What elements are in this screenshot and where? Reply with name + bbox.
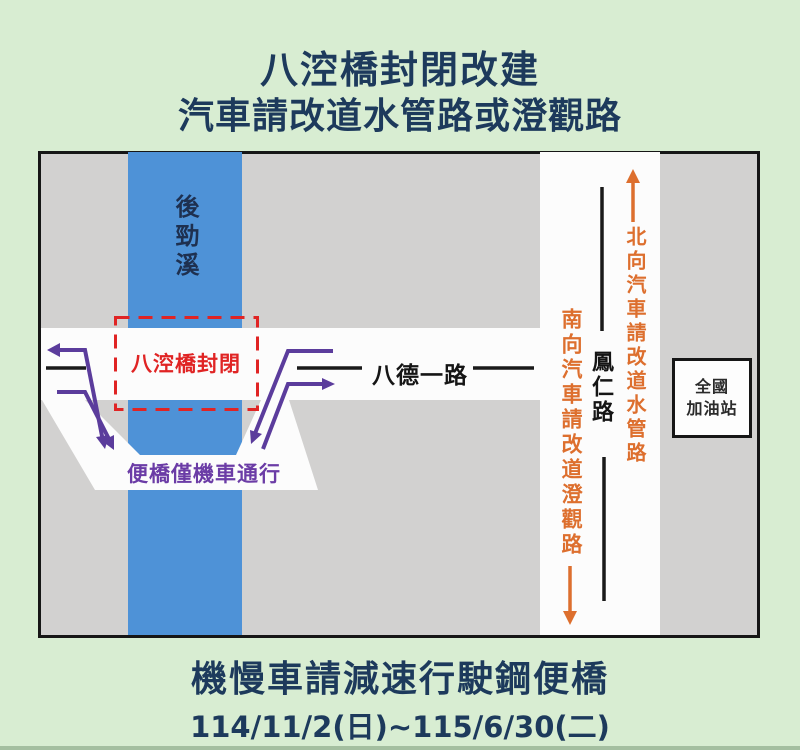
- closed-bridge-label: 八涳橋封閉: [115, 317, 257, 409]
- temporary-bridge-label: 便橋僅機車通行: [103, 458, 305, 488]
- southbound-detour-notice: 南向汽車請改道澄觀路: [556, 308, 586, 558]
- poster-title-line1: 八涳橋封閉改建: [0, 50, 800, 92]
- river-label: 後勁溪: [168, 194, 203, 281]
- footer-notice: 機慢車請減速行駛鋼便橋: [0, 650, 800, 702]
- poster-title-line2: 汽車請改道水管路或澄觀路: [0, 97, 800, 137]
- footer-date-range: 114/11/2(日)~115/6/30(二): [0, 704, 800, 746]
- gas-station-name-line2: 加油站: [686, 398, 737, 420]
- gas-station-name-line1: 全國: [695, 376, 729, 398]
- traffic-notice-poster: 八涳橋封閉改建 汽車請改道水管路或澄觀路: [0, 0, 800, 750]
- horizontal-road-label: 八德一路: [360, 356, 480, 390]
- vertical-road-label: 鳳仁路: [584, 350, 616, 425]
- gas-station-box: 全國 加油站: [672, 358, 752, 438]
- northbound-detour-notice: 北向汽車請改道水管路: [621, 226, 650, 466]
- bottom-cropped-strip: [0, 746, 800, 750]
